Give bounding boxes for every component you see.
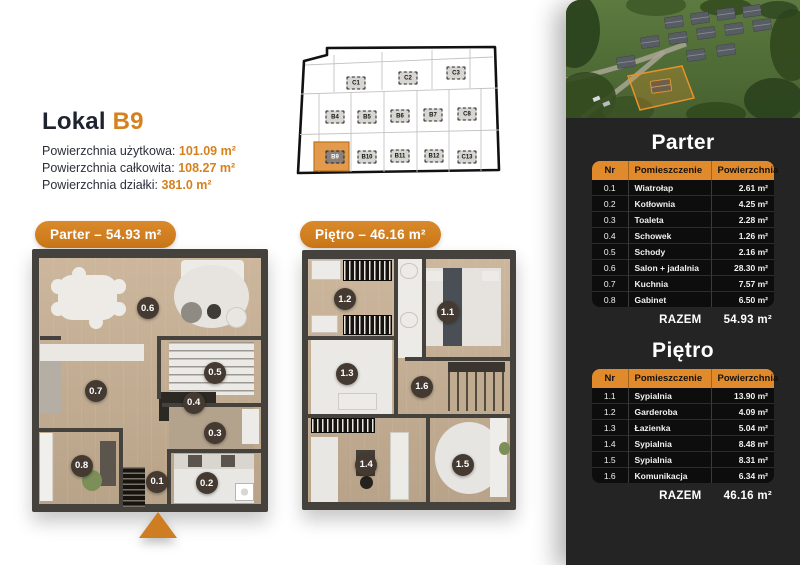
site-map-unit-c13[interactable]: C13 xyxy=(458,151,477,164)
site-map-unit-b5[interactable]: B5 xyxy=(358,111,377,124)
parter-total: RAZEM 54.93 m² xyxy=(566,314,772,326)
bed xyxy=(311,437,339,502)
site-map-unit-b9[interactable]: B9 xyxy=(326,151,345,164)
coffee-table xyxy=(207,304,221,318)
wall xyxy=(302,414,516,418)
room-number-badge: 0.1 xyxy=(146,471,168,493)
wall xyxy=(405,357,516,361)
entrance-arrow-icon xyxy=(139,512,177,538)
cabinet xyxy=(221,455,235,467)
wall xyxy=(422,258,426,357)
page-title: Lokal B9 xyxy=(42,108,292,136)
dresser xyxy=(311,315,339,333)
pietro-summary: Piętro Nr Pomieszczenie Powierzchnia 1.1… xyxy=(566,339,800,502)
toilet xyxy=(400,263,417,279)
pillow xyxy=(482,271,499,281)
washer xyxy=(235,483,254,501)
room-number-badge: 0.5 xyxy=(204,362,226,384)
bathtub xyxy=(242,409,259,443)
stair-rail xyxy=(448,362,506,372)
stairwell xyxy=(448,372,506,411)
site-map-unit-b4[interactable]: B4 xyxy=(326,111,345,124)
cart xyxy=(390,432,409,500)
table-row: 0.3Toaleta2.28 m² xyxy=(592,211,774,227)
desk xyxy=(100,441,115,486)
site-map-unit-c2[interactable]: C2 xyxy=(399,72,418,85)
site-map: C1C2C3B4B5B6B7C8B9B10B11B12C13 xyxy=(294,42,504,176)
room-number-badge: 1.4 xyxy=(355,454,377,476)
table-row: 1.1Sypialnia13.90 m² xyxy=(592,388,774,403)
table-header-row: Nr Pomieszczenie Powierzchnia xyxy=(592,161,774,180)
table-row: 1.2Garderoba4.09 m² xyxy=(592,403,774,419)
chair xyxy=(72,267,86,281)
chair xyxy=(51,302,65,316)
parter-table-title: Parter xyxy=(566,131,800,155)
kitchen-counter xyxy=(40,344,144,361)
shelving xyxy=(40,433,53,501)
wall xyxy=(119,428,123,512)
table-row: 1.6Komunikacja6.34 m² xyxy=(592,467,774,483)
chair xyxy=(89,315,103,329)
floor-plan-pietro: 1.11.21.31.41.51.6 xyxy=(302,250,516,510)
spec-usable-area: Powierzchnia użytkowa: 101.09 m² xyxy=(42,144,292,158)
table-row: 0.8Gabinet6.50 m² xyxy=(592,291,774,307)
site-map-unit-b10[interactable]: B10 xyxy=(358,151,377,164)
room-number-badge: 0.7 xyxy=(85,380,107,402)
wall xyxy=(302,336,396,340)
clothes-rack xyxy=(343,260,392,281)
room-number-badge: 1.2 xyxy=(334,288,356,310)
utility-cabinets xyxy=(174,454,254,468)
chair xyxy=(51,279,65,293)
pouf xyxy=(181,302,202,323)
table-row: 0.2Kotłownia4.25 m² xyxy=(592,195,774,211)
site-map-unit-b12[interactable]: B12 xyxy=(425,150,444,163)
wall xyxy=(40,336,61,340)
wall xyxy=(394,250,398,414)
highlighted-house xyxy=(650,79,671,94)
armchair xyxy=(226,307,247,328)
bed xyxy=(490,416,507,497)
room-number-badge: 1.1 xyxy=(437,301,459,323)
summary-panel: Parter Nr Pomieszczenie Powierzchnia 0.1… xyxy=(566,0,800,565)
chair xyxy=(112,279,126,293)
table-row: 1.4Sypialnia8.48 m² xyxy=(592,435,774,451)
site-map-unit-c1[interactable]: C1 xyxy=(347,77,366,90)
table-row: 1.3Łazienka5.04 m² xyxy=(592,419,774,435)
clothes-rack xyxy=(343,315,392,335)
aerial-photo xyxy=(566,0,800,118)
chair xyxy=(360,476,373,489)
plant xyxy=(499,442,510,455)
room-number-badge: 0.2 xyxy=(196,472,218,494)
unit-number: B9 xyxy=(113,108,144,135)
parter-area-pill: Parter – 54.93 m² xyxy=(35,221,176,248)
room-number-badge: 0.8 xyxy=(71,455,93,477)
table-row: 0.5Schody2.16 m² xyxy=(592,243,774,259)
parter-area-table: Nr Pomieszczenie Powierzchnia 0.1Wiatroł… xyxy=(592,161,774,307)
room-number-badge: 1.6 xyxy=(411,376,433,398)
wall xyxy=(157,336,161,399)
site-map-unit-c8[interactable]: C8 xyxy=(458,108,477,121)
site-map-unit-b11[interactable]: B11 xyxy=(391,150,410,163)
wall xyxy=(167,449,268,453)
wall xyxy=(32,428,122,432)
wall xyxy=(162,403,268,407)
room-number-badge: 1.5 xyxy=(452,454,474,476)
cabinet xyxy=(188,455,202,467)
spec-total-area: Powierzchnia całkowita: 108.27 m² xyxy=(42,161,292,175)
unit-header: Lokal B9 Powierzchnia użytkowa: 101.09 m… xyxy=(42,108,292,195)
room-number-badge: 0.4 xyxy=(183,392,205,414)
wall xyxy=(157,336,268,340)
table-header-row: Nr Pomieszczenie Powierzchnia xyxy=(592,369,774,388)
pietro-total: RAZEM 46.16 m² xyxy=(566,490,772,502)
room-number-badge: 0.3 xyxy=(204,422,226,444)
table-row: 0.4Schowek1.26 m² xyxy=(592,227,774,243)
dresser xyxy=(311,260,341,280)
aerial-render xyxy=(566,0,800,118)
sink xyxy=(400,312,417,328)
wall xyxy=(426,414,430,510)
room-number-badge: 0.6 xyxy=(137,297,159,319)
clothes-rack xyxy=(311,418,375,434)
title-prefix: Lokal xyxy=(42,108,106,135)
table-row: 0.6Salon + jadalnia28.30 m² xyxy=(592,259,774,275)
brochure-page: Lokal B9 Powierzchnia użytkowa: 101.09 m… xyxy=(0,0,800,565)
pillow xyxy=(426,271,443,281)
site-map-unit-b6[interactable]: B6 xyxy=(391,110,410,123)
pietro-table-title: Piętro xyxy=(566,339,800,363)
kitchen-cabinets xyxy=(40,361,61,414)
pietro-area-table: Nr Pomieszczenie Powierzchnia 1.1Sypialn… xyxy=(592,369,774,483)
room-number-badge: 1.3 xyxy=(336,363,358,385)
table-row: 1.5Sypialnia8.31 m² xyxy=(592,451,774,467)
bathtub xyxy=(338,393,377,410)
site-map-unit-c3[interactable]: C3 xyxy=(447,67,466,80)
site-map-unit-b7[interactable]: B7 xyxy=(424,109,443,122)
floor-plan-parter: 0.10.20.30.40.50.60.70.8 xyxy=(32,249,268,512)
dining-table xyxy=(58,275,117,320)
table-row: 0.7Kuchnia7.57 m² xyxy=(592,275,774,291)
parter-summary: Parter Nr Pomieszczenie Powierzchnia 0.1… xyxy=(566,131,800,326)
spec-plot-area: Powierzchnia działki: 381.0 m² xyxy=(42,178,292,192)
pietro-area-pill: Piętro – 46.16 m² xyxy=(300,221,441,248)
table-row: 0.1Wiatrołap2.61 m² xyxy=(592,180,774,195)
